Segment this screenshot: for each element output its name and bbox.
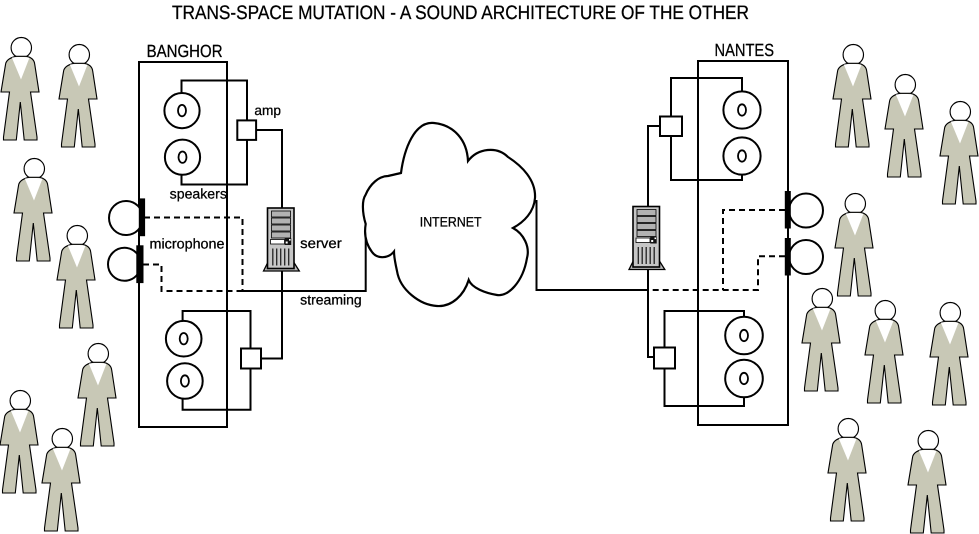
svg-text:INTERNET: INTERNET (420, 215, 482, 230)
svg-text:microphone: microphone (150, 236, 225, 252)
svg-text:server: server (300, 236, 342, 252)
svg-text:amp: amp (254, 103, 281, 118)
svg-text:streaming: streaming (300, 292, 362, 308)
svg-text:BANGHOR: BANGHOR (147, 41, 223, 61)
svg-text:NANTES: NANTES (715, 40, 775, 60)
svg-text:TRANS-SPACE MUTATION - A SOUND: TRANS-SPACE MUTATION - A SOUND ARCHITECT… (172, 2, 749, 24)
svg-text:speakers: speakers (170, 185, 227, 201)
